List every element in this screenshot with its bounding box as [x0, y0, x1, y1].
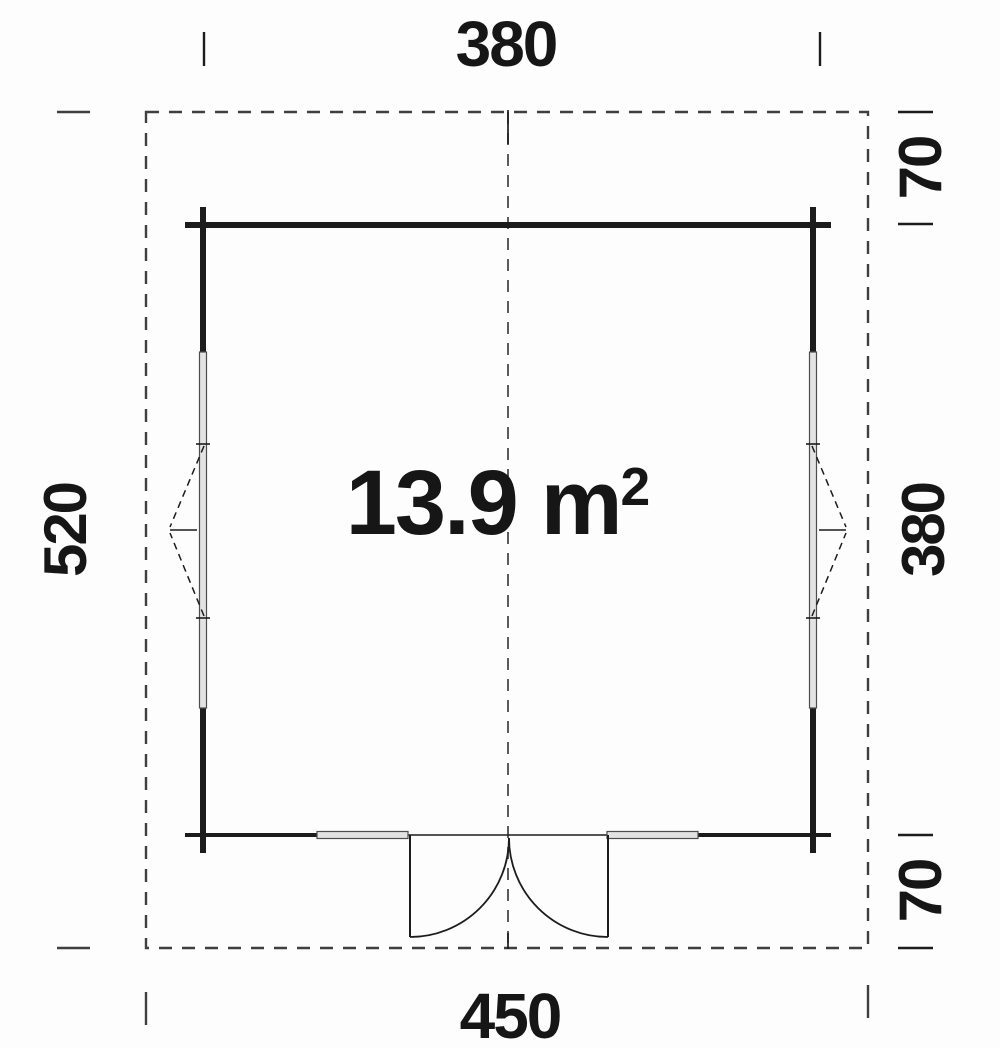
floor-area-unit: m — [541, 452, 621, 554]
floor-area-exponent: 2 — [621, 458, 649, 517]
dimension-right-height: 380 — [894, 483, 954, 577]
floor-plan-canvas: 380 450 520 380 70 70 13.9m2 — [0, 0, 1000, 1048]
window-bottom-left — [317, 832, 408, 839]
dimension-bottom-overhang: 70 — [891, 860, 951, 923]
window-left-swing-upper — [170, 446, 204, 527]
dimension-top-width: 380 — [456, 12, 557, 76]
window-right — [810, 352, 817, 708]
floor-area-value: 13.9 — [346, 452, 517, 554]
dimension-bottom-width: 450 — [460, 984, 561, 1048]
window-left — [200, 352, 207, 708]
window-bottom-right — [607, 832, 698, 839]
door-swing-arc-left — [410, 838, 509, 937]
door-swing-arc-right — [509, 838, 608, 937]
floor-area-label: 13.9m2 — [346, 457, 648, 549]
dimension-top-overhang: 70 — [891, 137, 951, 200]
window-left-swing-lower — [170, 533, 204, 616]
dimension-left-height: 520 — [36, 483, 96, 577]
